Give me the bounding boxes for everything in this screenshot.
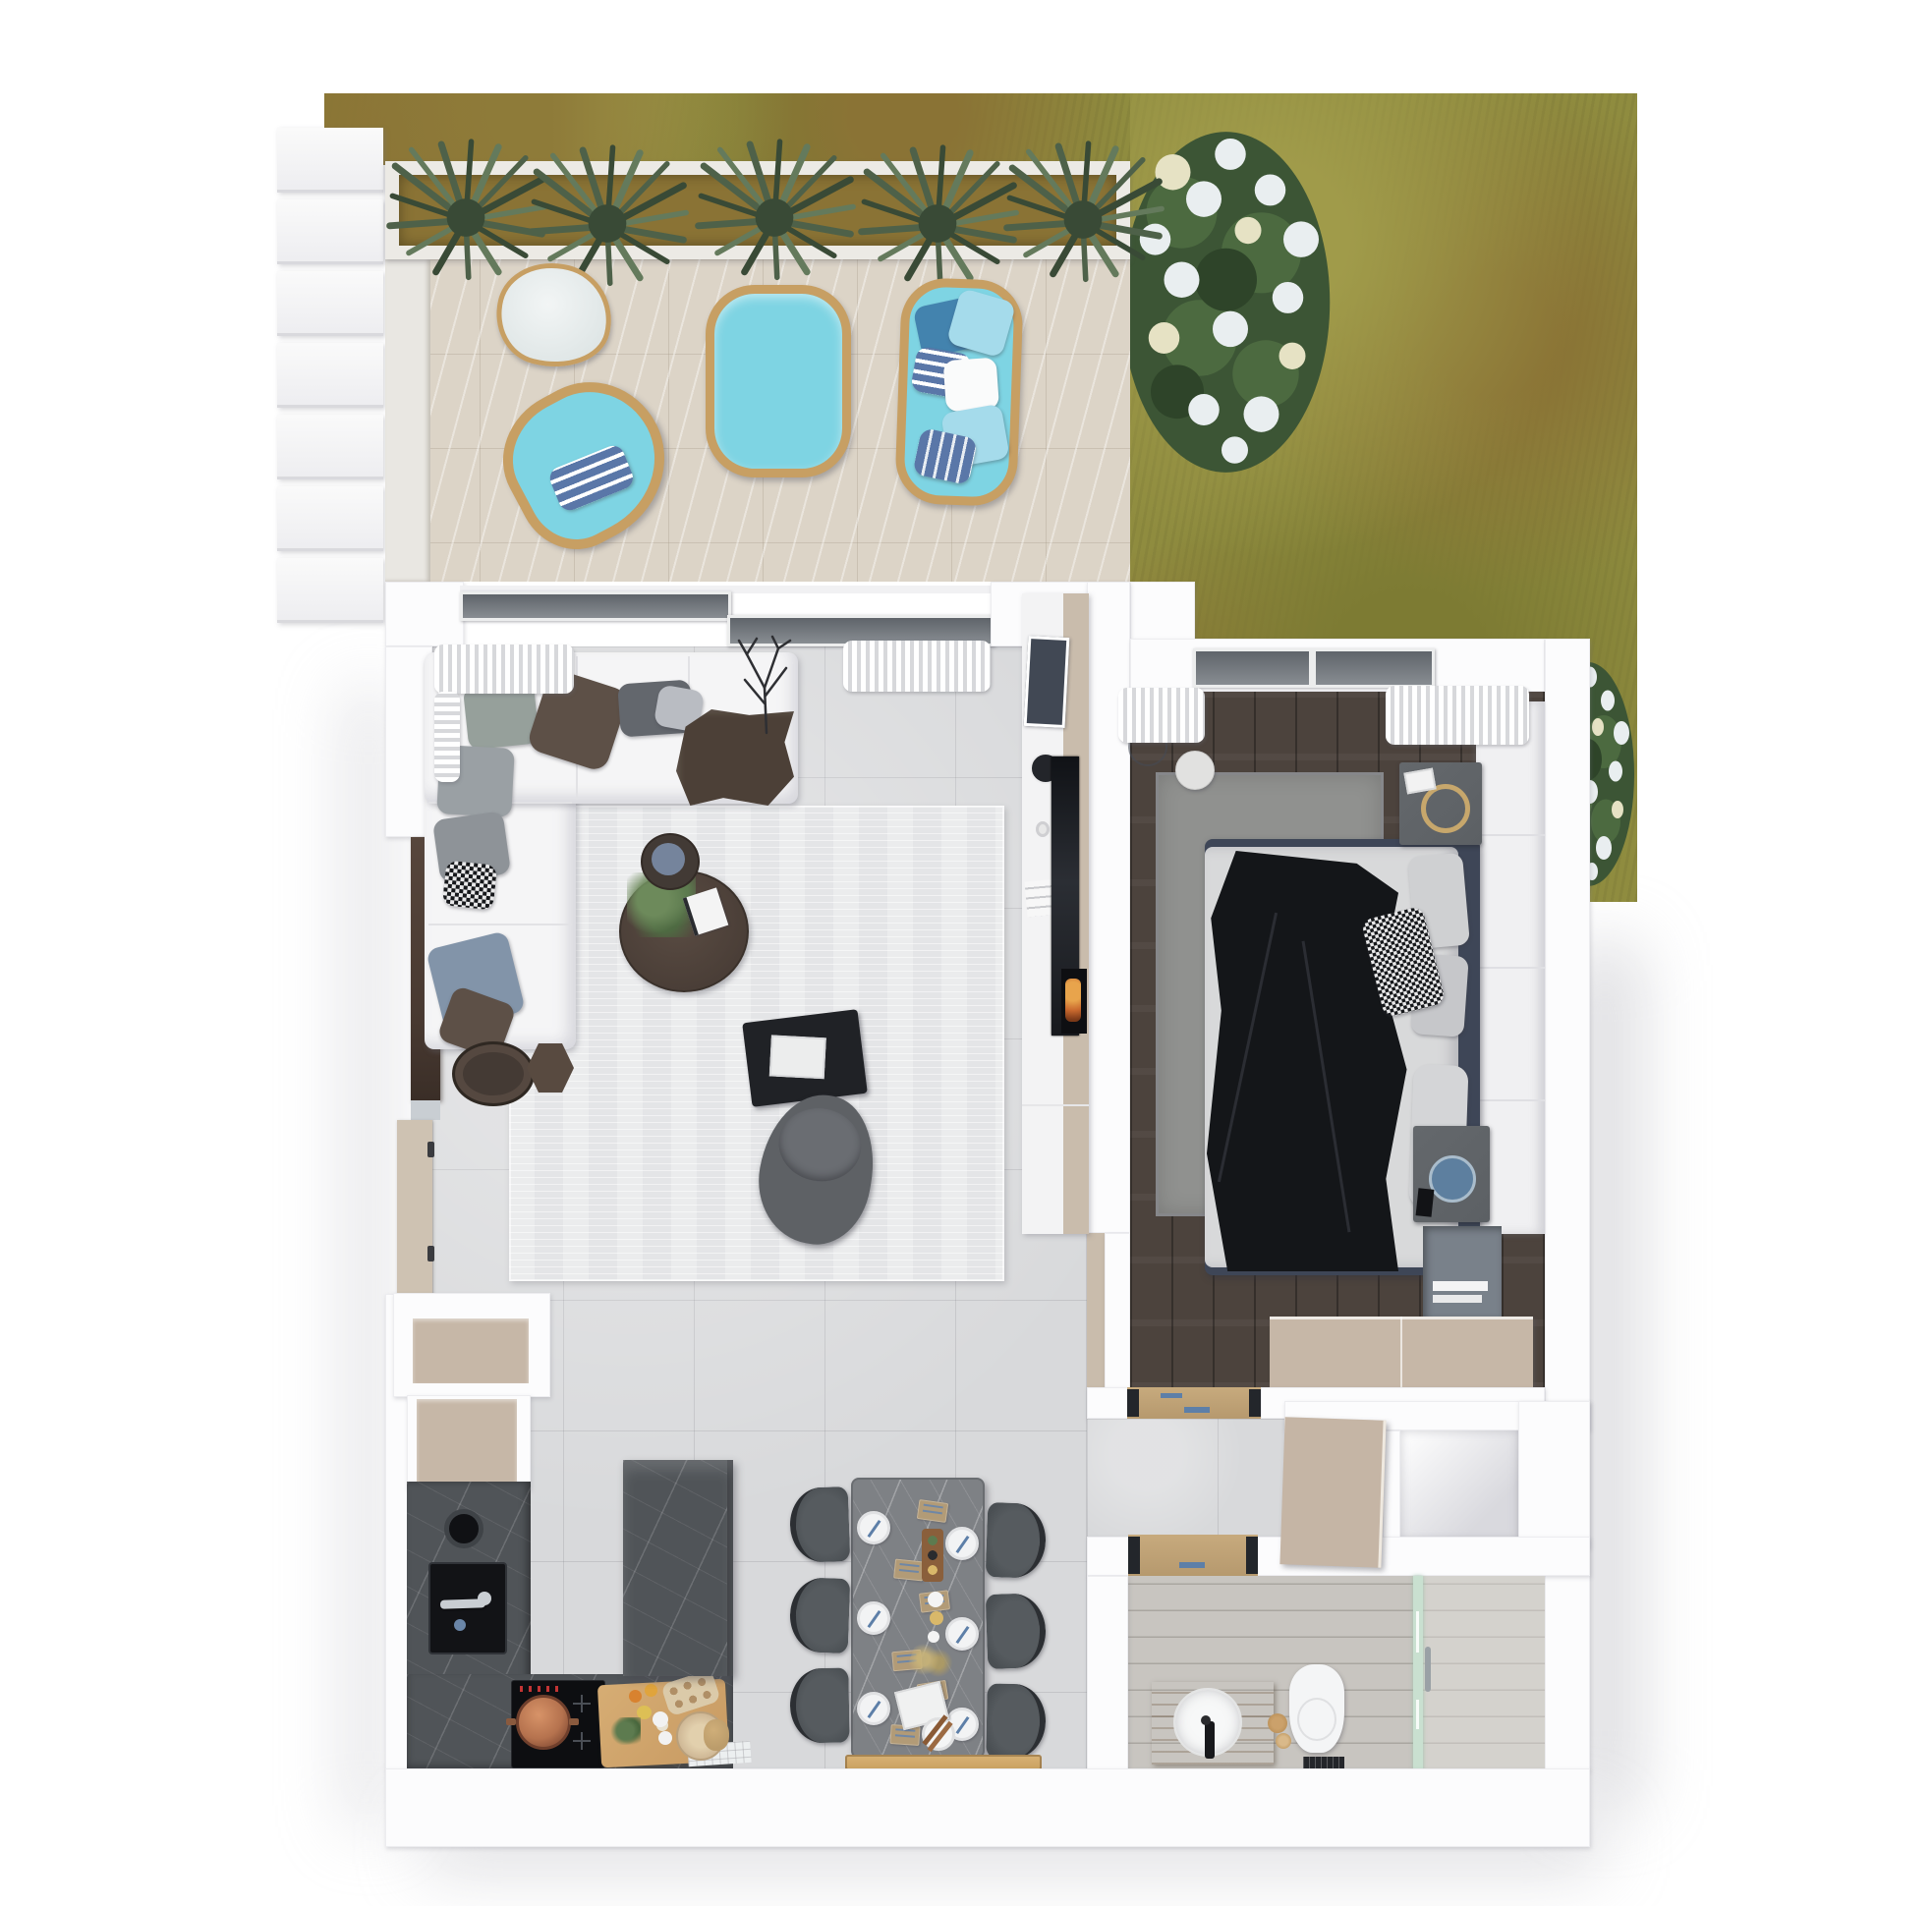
wardrobe-seam-3 — [1476, 1099, 1545, 1101]
fireplace-flames — [1065, 979, 1081, 1022]
towel-roll-1 — [1268, 1713, 1287, 1733]
wall-right — [1545, 639, 1590, 1770]
decor-candle — [1036, 821, 1050, 837]
curtain-top-left — [434, 645, 574, 694]
toilet-lid-line — [1297, 1698, 1336, 1741]
black-low-table — [742, 1009, 868, 1107]
copper-pot — [516, 1695, 571, 1750]
picture-frame — [1024, 636, 1070, 728]
glass-glint-1 — [1416, 1611, 1419, 1653]
bathroom-door-leaf-open — [1279, 1417, 1386, 1568]
sliding-glass-door-pane-1 — [460, 591, 731, 621]
pergola-louver-1 — [277, 128, 383, 193]
wardrobe-seam-2 — [1476, 967, 1545, 969]
veg-greens — [609, 1717, 641, 1745]
pouf — [1175, 751, 1215, 790]
tray-table-top — [652, 843, 685, 875]
burner-mark-2 — [581, 1695, 583, 1712]
burner-mark-4 — [581, 1732, 583, 1750]
toilet — [1289, 1664, 1344, 1753]
kitchen-island — [623, 1460, 733, 1676]
duvet-fold-1 — [1218, 913, 1278, 1183]
center-bowl-2 — [930, 1611, 943, 1625]
wall-bottom — [385, 1768, 1590, 1847]
door-hinge-1 — [427, 1142, 434, 1157]
place-setting-plate — [857, 1692, 890, 1725]
console-seam — [1022, 1104, 1089, 1106]
wardrobe-seam-1 — [1476, 834, 1545, 836]
place-setting-plate — [857, 1601, 890, 1635]
sink-faucet-black — [1205, 1721, 1215, 1759]
outdoor-ottoman — [706, 285, 851, 477]
shelf-books-1 — [1433, 1281, 1488, 1291]
sofa-seam-4 — [428, 924, 572, 925]
center-bowl-3 — [928, 1631, 939, 1643]
pergola-louver-4 — [277, 343, 383, 408]
small-bowl-1 — [653, 1711, 668, 1727]
shower-handle-bar — [1425, 1647, 1431, 1692]
cooktop — [511, 1680, 605, 1768]
pergola-louver-7 — [277, 558, 383, 623]
napkin — [893, 1558, 925, 1581]
closet-front-b — [417, 1399, 517, 1486]
ring-lamp — [1421, 784, 1470, 833]
outdoor-loveseat — [894, 277, 1024, 507]
duvet-fold-2 — [1302, 941, 1351, 1233]
wall-partition — [1087, 582, 1130, 1233]
jar — [704, 1719, 729, 1751]
bedroom-window-mullion — [1309, 650, 1316, 686]
armchair-pillow — [546, 442, 636, 514]
veg-carrot — [629, 1690, 642, 1703]
planter-grass-5 — [998, 140, 1167, 289]
faucet-knob — [1201, 1715, 1211, 1725]
curtain-top-right — [843, 641, 991, 692]
storage-niche — [1400, 1430, 1518, 1541]
bathroom-west-wall — [1087, 1576, 1128, 1770]
curtain-left-return — [434, 692, 460, 782]
entry-closet-box-a — [393, 1293, 550, 1397]
fireplace-insert — [1061, 969, 1087, 1034]
bowl-with-spoons — [922, 1717, 955, 1751]
door-hinge-2 — [427, 1246, 434, 1261]
bedroom-door-threshold — [1127, 1387, 1261, 1419]
door-track-left — [1127, 1389, 1139, 1417]
place-setting-plate — [945, 1617, 979, 1651]
door-track-right — [1246, 1537, 1258, 1574]
door-handle-blue-2 — [1161, 1393, 1182, 1398]
pergola-louver-2 — [277, 199, 383, 264]
nightstand-south — [1413, 1126, 1490, 1222]
shower-glass-screen — [1413, 1576, 1423, 1770]
shower-floor — [1423, 1576, 1545, 1770]
entry-closet-box-b — [407, 1395, 531, 1489]
napkin — [917, 1499, 948, 1523]
pergola-louver-5 — [277, 415, 383, 479]
faucet-base — [478, 1592, 491, 1605]
entry-door-jamb — [397, 1120, 432, 1295]
bathroom-door-threshold — [1128, 1535, 1258, 1576]
towel-roll-2 — [1276, 1733, 1291, 1749]
pergola-louver-3 — [277, 271, 383, 336]
small-bowl-2 — [658, 1731, 672, 1745]
kitchen-sink — [428, 1562, 507, 1654]
cooktop-controls — [520, 1686, 563, 1692]
planter-grass-4 — [853, 143, 1022, 293]
bedroom-door-west-jamb — [1087, 1387, 1130, 1419]
faucet-cap — [454, 1619, 466, 1631]
place-setting-plate — [945, 1527, 979, 1560]
door-handle-blue — [1179, 1562, 1205, 1568]
nightstand-north — [1399, 762, 1482, 845]
floor-plan-canvas — [0, 0, 1932, 1906]
place-setting-plate — [857, 1511, 890, 1544]
glass-glint-2 — [1416, 1700, 1419, 1729]
blue-tray — [1429, 1155, 1476, 1203]
media-console — [1022, 593, 1089, 1234]
wall-top-west — [385, 582, 464, 646]
tray-table — [641, 833, 700, 890]
lounge-chair-seat — [773, 1101, 868, 1187]
hallway-floor — [1087, 1419, 1284, 1537]
veg-orange — [645, 1684, 657, 1697]
center-bowl-1 — [928, 1592, 943, 1607]
pergola-louver-6 — [277, 486, 383, 551]
closet-front-a — [413, 1318, 529, 1383]
niche-right-wall — [1518, 1401, 1590, 1548]
door-handle-blue-1 — [1184, 1407, 1210, 1413]
niche-left-wall — [1383, 1430, 1400, 1541]
branch-decor — [735, 635, 798, 737]
condiment-tray — [922, 1529, 943, 1582]
wall-partition-low — [1105, 1233, 1130, 1388]
open-shelf — [1423, 1226, 1502, 1318]
entry-door-chrome — [411, 1100, 440, 1120]
remote — [1416, 1188, 1435, 1217]
bedroom-curtain-left — [1118, 688, 1205, 743]
side-table-oval — [452, 1041, 535, 1106]
shelf-books-2 — [1433, 1295, 1482, 1303]
door-track-left — [1128, 1537, 1140, 1574]
waste-ring — [444, 1509, 483, 1548]
bedroom-curtain-right — [1386, 686, 1529, 745]
planter-grass-3 — [690, 138, 859, 287]
pot-handle-right — [569, 1718, 579, 1725]
door-track-right — [1249, 1389, 1261, 1417]
terrace-curb — [385, 259, 430, 582]
pot-handle-left — [506, 1718, 516, 1725]
magazine — [769, 1035, 826, 1079]
sofa-pillow-checker — [442, 860, 498, 910]
loveseat-pillow-white — [943, 358, 999, 413]
